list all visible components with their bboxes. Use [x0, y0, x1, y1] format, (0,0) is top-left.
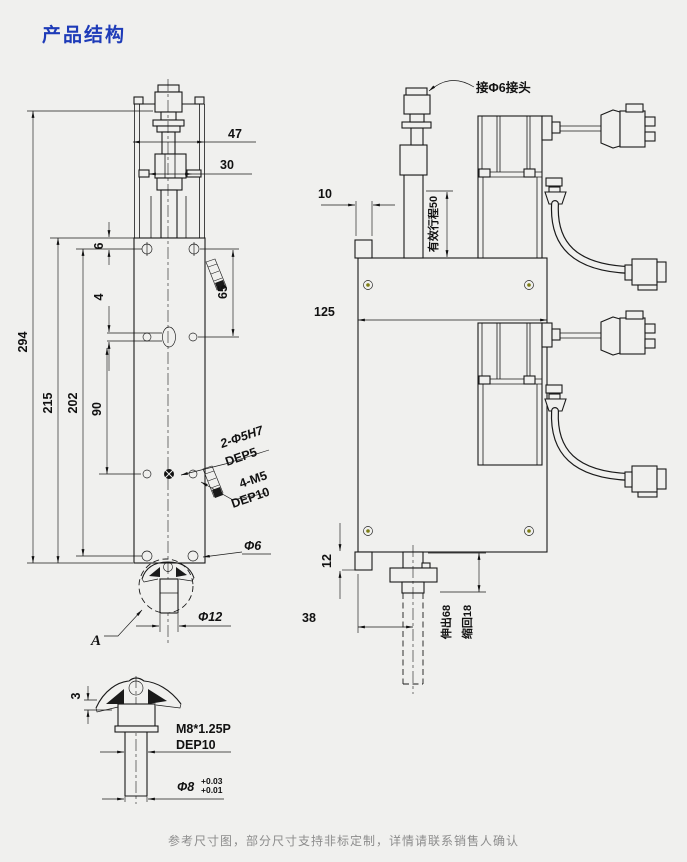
label-pin-holes: 2-Φ5H7	[217, 423, 265, 451]
label-fitting: 接Φ6接头	[476, 80, 531, 95]
air-fitting	[153, 85, 186, 238]
dim-3: 3	[69, 692, 83, 699]
dim-202: 202	[66, 393, 80, 414]
dim-6: 6	[92, 242, 106, 249]
dim-30: 30	[220, 158, 234, 172]
dim-38: 38	[302, 611, 316, 625]
rod-end-clevis	[139, 559, 194, 613]
dim-phi12: Φ12	[198, 610, 222, 624]
dim-rod-dia: Φ8	[177, 780, 194, 794]
hex-nut	[155, 154, 186, 178]
technical-drawing: 47 30 294 215 202 90	[0, 0, 687, 862]
dim-tol-lower: +0.01	[201, 785, 223, 795]
dim-12: 12	[320, 554, 334, 568]
dim-294: 294	[16, 332, 30, 353]
piston-rod-bottom	[390, 545, 437, 694]
rod-flange	[390, 568, 437, 582]
dim-thread: M8*1.25P	[176, 722, 231, 736]
dim-4: 4	[92, 293, 106, 300]
body-plate	[134, 238, 205, 563]
dim-thread-depth: DEP10	[176, 738, 216, 752]
dim-10: 10	[318, 187, 332, 201]
label-phi6: Φ6	[244, 539, 262, 553]
dim-125: 125	[314, 305, 335, 319]
detail-mark-a: A	[90, 633, 101, 649]
air-fitting-top	[406, 88, 427, 95]
label-tap-depth: DEP10	[229, 485, 271, 511]
left-view: 47 30 294 215 202 90	[16, 79, 271, 649]
dim-47: 47	[228, 127, 242, 141]
drawing-page: 产品结构	[0, 0, 687, 862]
label-retract: 缩回18	[460, 605, 474, 639]
right-view: 接Φ6接头 有效行程50 10 125 12	[302, 80, 666, 694]
dim-215: 215	[41, 393, 55, 414]
footer-note: 参考尺寸图，部分尺寸支持非标定制，详情请联系销售人确认	[0, 832, 687, 849]
dim-90: 90	[90, 402, 104, 416]
piston-rod-top	[400, 88, 431, 258]
dim-65: 65	[216, 285, 230, 299]
detail-view-a: 3 M8*1.25P DEP10 Φ8 +0.03 +0.01	[69, 676, 231, 804]
label-stroke: 有效行程50	[426, 196, 440, 252]
rod-end-detail	[96, 678, 181, 796]
label-extend: 伸出68	[439, 605, 453, 640]
dowel-pin-hole	[164, 469, 174, 479]
